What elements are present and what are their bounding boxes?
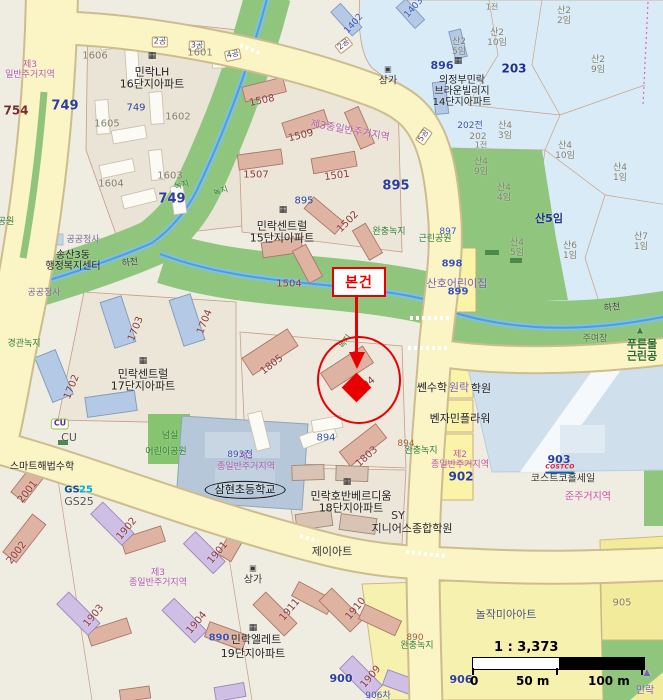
subject-arrow-line [355,292,358,354]
scale-bar-graphic [472,657,645,670]
scale-fifty: 50 m [516,674,549,688]
scale-ratio: 1 : 3,373 [494,640,558,655]
map-canvas[interactable]: 2공3공4공2공5공1전산2 2임산2 10임산2 5임산2 9임203896의… [0,0,663,700]
subject-arrow-head [349,352,365,369]
scale-zero: 0 [470,674,478,688]
subject-callout-box: 본건 [332,267,386,297]
scale-hundred: 100 m [588,674,630,688]
